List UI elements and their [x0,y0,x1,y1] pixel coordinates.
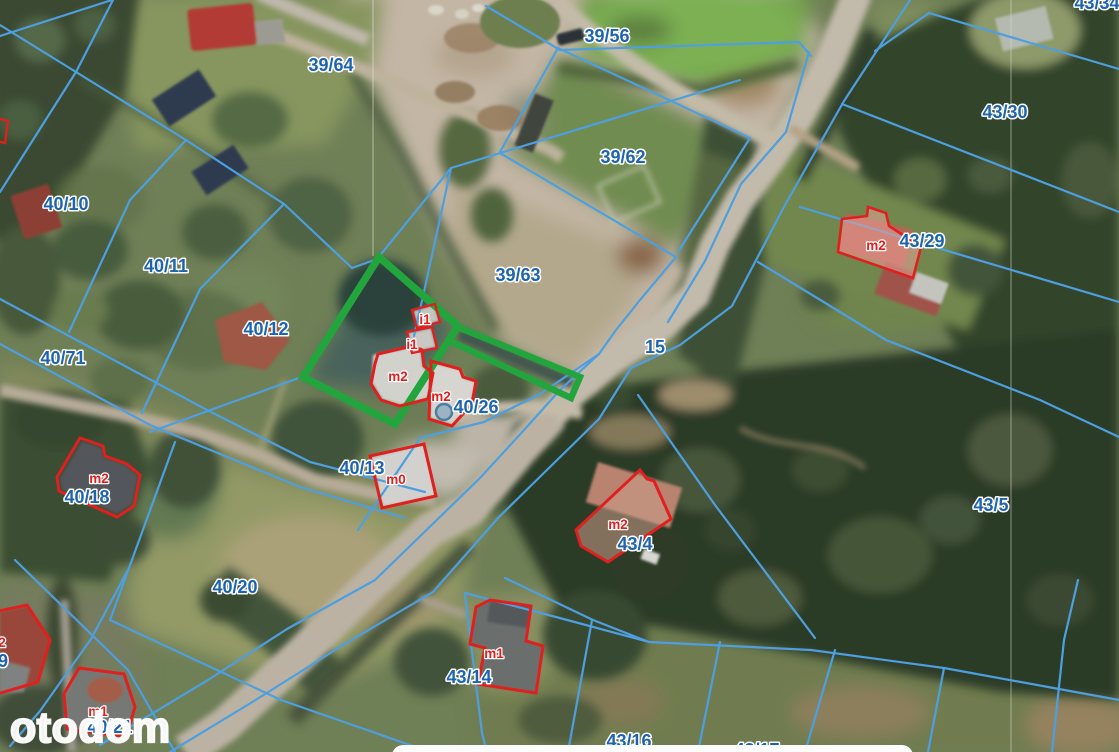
svg-text:39/64: 39/64 [308,55,353,75]
svg-text:15: 15 [645,337,665,357]
svg-text:m2: m2 [388,369,408,384]
svg-text:40/12: 40/12 [243,319,288,339]
svg-text:39/62: 39/62 [600,147,645,167]
svg-text:43/4: 43/4 [617,534,652,554]
svg-text:m2: m2 [89,471,109,486]
svg-text:m2: m2 [0,635,6,650]
svg-text:39/63: 39/63 [495,265,540,285]
svg-text:40/18: 40/18 [64,487,109,507]
svg-text:m1: m1 [484,646,504,661]
svg-text:43/30: 43/30 [982,102,1027,122]
svg-text:m0: m0 [386,472,406,487]
svg-text:40/10: 40/10 [43,194,88,214]
svg-text:i1: i1 [406,337,418,352]
svg-text:m2: m2 [608,517,628,532]
svg-text:i1: i1 [419,312,431,327]
svg-text:40/71: 40/71 [40,348,85,368]
svg-text:39/56: 39/56 [584,26,629,46]
svg-text:43/14: 43/14 [446,667,491,687]
svg-text:m2: m2 [431,389,451,404]
svg-text:40/20: 40/20 [212,577,257,597]
svg-text:19: 19 [0,651,8,671]
svg-text:otodom: otodom [10,704,171,752]
svg-text:40/11: 40/11 [144,256,188,276]
svg-text:43/29: 43/29 [899,231,944,251]
svg-text:40/13: 40/13 [339,458,384,478]
svg-text:43/5: 43/5 [973,495,1008,515]
svg-text:40/26: 40/26 [453,397,498,417]
svg-text:43/34: 43/34 [1074,0,1119,13]
svg-text:m2: m2 [866,238,886,253]
